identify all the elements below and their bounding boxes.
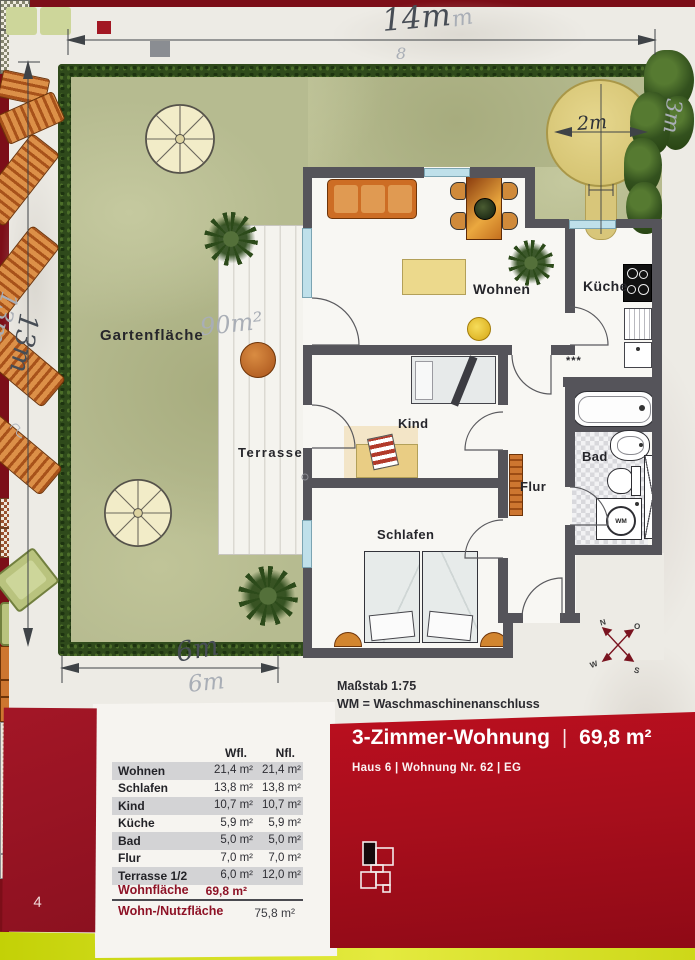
table-row: Bad5,0 m²5,0 m² <box>112 832 303 850</box>
bedroom-label: Schlafen <box>377 528 434 541</box>
scanned-floorplan-page: WM <box>0 0 695 960</box>
washing-machine: WM <box>596 498 642 540</box>
table-row: Schlafen13,8 m²13,8 m² <box>112 780 303 798</box>
wall <box>303 648 513 658</box>
legend-note: WM = Waschmaschinenanschluss <box>337 697 540 711</box>
wall <box>303 167 424 178</box>
garden-door <box>569 220 616 229</box>
wall <box>560 613 580 623</box>
table-cell: 21,4 m² <box>253 765 301 777</box>
page-outside-1 <box>576 553 664 660</box>
floor-lamp <box>467 317 491 341</box>
dim-tree: 2m <box>576 111 608 135</box>
wall <box>565 545 662 555</box>
red-mark-2 <box>97 21 111 34</box>
table-row: Wohnen21,4 m²21,4 m² <box>112 762 303 780</box>
apartment-type-title: 3-Zimmer-Wohnung <box>352 726 550 750</box>
dining-chair-1 <box>450 182 466 200</box>
area-table-body: Wohnen21,4 m²21,4 m²Schlafen13,8 m²13,8 … <box>112 762 303 885</box>
terrace-label: Terrasse <box>238 446 303 459</box>
building-position-icon <box>358 840 400 896</box>
table-cell: 7,0 m² <box>198 853 253 865</box>
terrace-deck <box>218 225 308 555</box>
apartment-subtitle: Haus 6 | Wohnung Nr. 62 | EG <box>352 762 521 774</box>
dim-bottom-pencil: 6m <box>187 668 226 698</box>
window-living-top <box>424 168 470 177</box>
dining-chair-3 <box>502 182 518 200</box>
table-cell: Terrasse 1/2 <box>112 870 198 882</box>
bath-label: Bad <box>582 450 608 463</box>
table-header-wfl: Wfl. <box>192 746 247 760</box>
table-cell: 6,0 m² <box>198 870 253 882</box>
title-banner: 3-Zimmer-Wohnung | 69,8 m² Haus 6 | Wohn… <box>330 710 695 948</box>
table-cell: 12,0 m² <box>253 870 301 882</box>
table-cell: 5,0 m² <box>198 835 253 847</box>
table-divider <box>112 899 303 901</box>
window-bedroom-terrace <box>302 520 312 568</box>
palm-plant-garden-bottom <box>238 566 298 626</box>
toilet-tank <box>631 466 641 496</box>
table-cell: Schlafen <box>112 782 198 794</box>
kitchen-label: Küche <box>583 279 628 293</box>
title-separator: | <box>562 727 567 750</box>
wall <box>498 558 508 623</box>
child-label: Kind <box>398 417 428 430</box>
table-cell: Kind <box>112 800 198 812</box>
table-row: Flur7,0 m²7,0 m² <box>112 850 303 868</box>
table-cell: 10,7 m² <box>253 800 301 812</box>
table-header-nfl: Nfl. <box>247 746 295 760</box>
wall <box>303 345 512 355</box>
summary-wohnflaeche-value: 69,8 m² <box>192 884 247 898</box>
wall <box>498 488 508 518</box>
table-row: Kind10,7 m²10,7 m² <box>112 797 303 815</box>
banner-title-row: 3-Zimmer-Wohnung | 69,8 m² <box>352 726 652 750</box>
wall <box>565 525 575 550</box>
wall <box>303 568 312 658</box>
window-living-terrace <box>302 228 312 298</box>
kitchen-basin <box>624 342 652 368</box>
indoor-plant <box>508 240 554 286</box>
table-cell: 5,9 m² <box>198 818 253 830</box>
page-outside-2 <box>513 623 580 658</box>
wall <box>563 377 662 387</box>
summary-nutzflaeche-value: 75,8 m² <box>247 906 295 920</box>
table-cell: 7,0 m² <box>253 853 301 865</box>
table-cell: 21,4 m² <box>198 765 253 777</box>
table-row: Küche5,9 m²5,9 m² <box>112 815 303 833</box>
dining-chair-4 <box>502 212 518 230</box>
table-cell: 10,7 m² <box>198 800 253 812</box>
page-number: 4 <box>33 894 41 911</box>
table-cell: Bad <box>112 835 198 847</box>
table-cell: Wohnen <box>112 765 198 777</box>
bathtub <box>572 391 656 427</box>
kitchen-stars: *** <box>566 356 582 367</box>
table-cell: 13,8 m² <box>198 783 253 795</box>
table-cell: 5,9 m² <box>253 818 301 830</box>
toilet <box>607 468 633 494</box>
hedge-top <box>58 64 660 77</box>
wall <box>565 228 575 313</box>
summary-wohnflaeche-label: Wohnfläche <box>118 883 189 897</box>
table-bowl <box>474 198 496 220</box>
gray-mark <box>150 41 170 57</box>
washer-label: WM <box>615 518 627 525</box>
table-row: Terrasse 1/26,0 m²12,0 m² <box>112 867 303 885</box>
left-red-block: 4 <box>2 708 97 933</box>
sofa <box>327 179 417 219</box>
kitchen-sink <box>624 308 652 340</box>
table-cell: 5,0 m² <box>253 835 301 847</box>
summary-nutzflaeche-label: Wohn-/Nutzfläche <box>118 904 223 918</box>
hall-label: Flur <box>520 480 546 493</box>
dim-top: 14m <box>381 0 453 39</box>
wall <box>525 219 569 228</box>
double-bed <box>364 551 478 645</box>
living-label: Wohnen <box>473 282 530 296</box>
dim-top-faint-8: 8 <box>396 44 406 63</box>
terrace-round-table <box>240 342 276 378</box>
coffee-table <box>402 259 466 295</box>
hedge-left <box>58 64 71 656</box>
table-cell: Flur <box>112 852 198 864</box>
dim-right-pencil: 3m <box>657 97 686 134</box>
garden-label: Gartenfläche <box>100 328 204 343</box>
wall <box>565 385 575 487</box>
wall <box>652 219 662 555</box>
scale-note: Maßstab 1:75 <box>337 679 416 693</box>
child-bed <box>411 356 496 404</box>
wall <box>303 167 312 228</box>
palm-plant-terrace <box>204 212 258 266</box>
wall <box>498 355 508 405</box>
parasol-bottom <box>102 477 174 549</box>
dim-top-faint-m: m <box>450 4 475 32</box>
wall <box>565 545 575 623</box>
table-cell: 13,8 m² <box>253 783 301 795</box>
apartment-area: 69,8 m² <box>579 726 651 750</box>
table-cell: Küche <box>112 817 198 829</box>
wall <box>551 345 575 355</box>
wall <box>303 478 508 488</box>
dining-chair-2 <box>450 212 466 230</box>
parasol-top <box>143 102 217 176</box>
